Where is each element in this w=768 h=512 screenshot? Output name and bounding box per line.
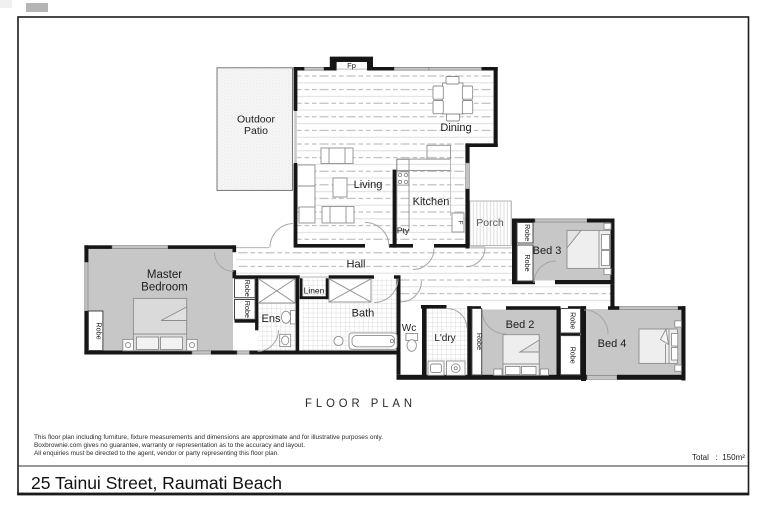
svg-text:Kitchen: Kitchen [413,196,450,208]
svg-text:Robe: Robe [475,333,484,350]
svg-text:F: F [456,221,463,225]
svg-text:Bedroom: Bedroom [141,282,188,294]
svg-text:Total : 150m²: Total : 150m² [692,453,745,462]
svg-text:Master: Master [147,269,182,281]
svg-text:Fp: Fp [347,61,356,70]
svg-text:Dining: Dining [440,122,471,134]
svg-text:25 Tainui Street, Raumati Beac: 25 Tainui Street, Raumati Beach [31,473,282,493]
svg-text:Hall: Hall [347,259,366,271]
svg-text:Wc: Wc [402,323,416,334]
svg-text:Pty: Pty [397,226,410,236]
svg-text:Robe: Robe [569,347,578,364]
svg-text:Living: Living [354,179,383,191]
svg-text:All enquiries must be directed: All enquiries must be directed to the ag… [34,450,279,457]
svg-text:Ens: Ens [262,313,281,325]
svg-text:FLOOR PLAN: FLOOR PLAN [305,398,416,410]
svg-text:L'dry: L'dry [434,333,455,344]
svg-text:Robe: Robe [523,224,532,241]
svg-text:Boxbrownie.com gives no guaran: Boxbrownie.com gives no guarantee, warra… [34,442,305,449]
svg-text:Robe: Robe [243,280,252,297]
svg-text:Bed 3: Bed 3 [533,245,562,257]
svg-text:Linen: Linen [304,286,325,296]
svg-text:Robe: Robe [523,254,532,271]
svg-text:Robe: Robe [95,322,104,339]
svg-text:Bed 4: Bed 4 [598,338,627,350]
svg-text:This floor plan including furn: This floor plan including furniture, fix… [34,434,383,441]
svg-text:Bed 2: Bed 2 [506,319,535,331]
svg-text:Robe: Robe [243,301,252,318]
svg-text:Robe: Robe [569,312,578,329]
svg-text:Bath: Bath [352,308,375,320]
svg-text:Porch: Porch [476,217,504,229]
svg-text:Patio: Patio [244,125,268,137]
svg-text:Outdoor: Outdoor [237,114,275,126]
